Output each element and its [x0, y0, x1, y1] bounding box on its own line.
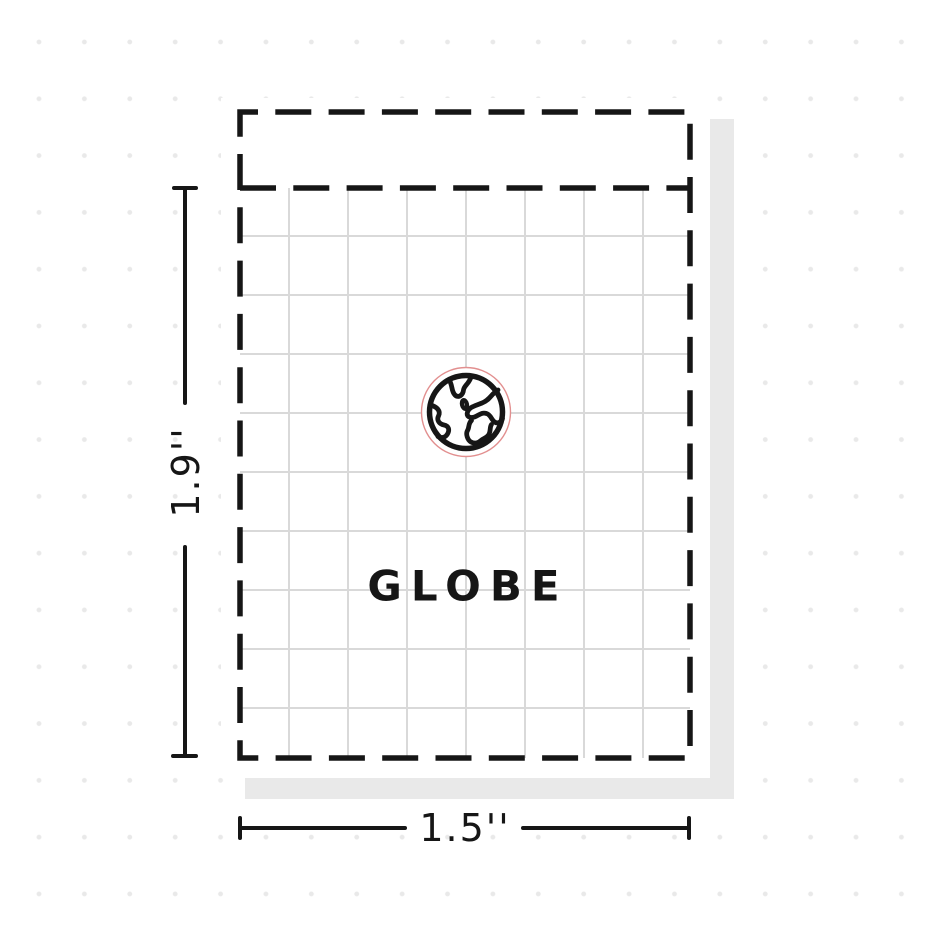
width-dimension-line-left — [240, 826, 407, 830]
width-dimension-label: 1.5'' — [419, 806, 510, 850]
width-dimension-cap-right — [687, 816, 691, 840]
height-dimension-line-lower — [183, 545, 187, 758]
mockup-stage: GLOBE 1.9'' 1.5'' — [0, 0, 940, 940]
sheet-grid — [240, 188, 690, 758]
height-dimension-cap-bottom — [171, 754, 198, 758]
globe-icon — [418, 364, 514, 460]
height-dimension-line-upper — [183, 188, 187, 405]
height-dimension-label: 1.9'' — [164, 426, 208, 517]
sticker-label: GLOBE — [367, 562, 568, 611]
width-dimension-line-right — [521, 826, 689, 830]
